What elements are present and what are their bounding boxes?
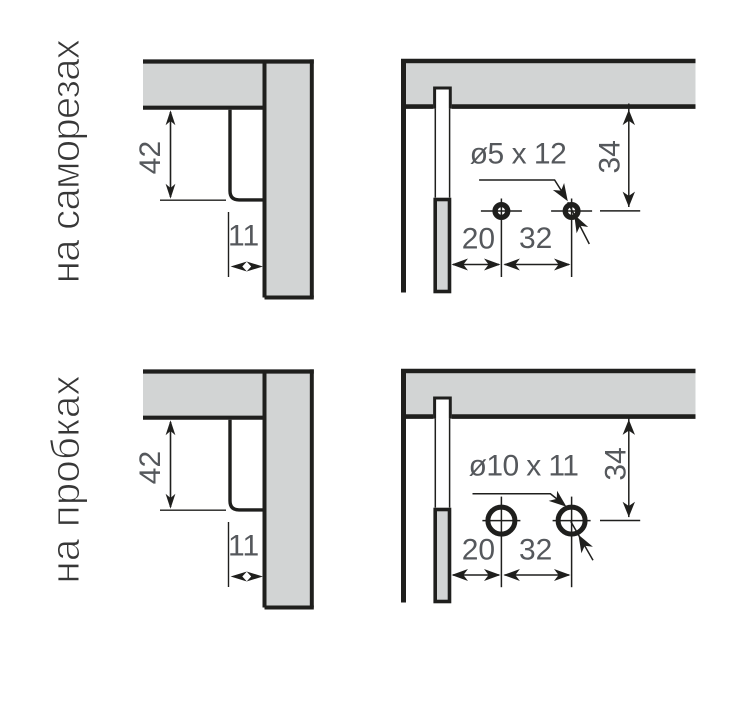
svg-text:32: 32	[519, 534, 552, 567]
svg-text:34: 34	[593, 140, 626, 173]
svg-text:11: 11	[228, 530, 259, 563]
svg-text:34: 34	[600, 447, 633, 480]
svg-text:42: 42	[134, 141, 167, 174]
svg-text:на саморезах: на саморезах	[44, 39, 88, 283]
svg-text:11: 11	[228, 220, 259, 253]
svg-text:ø5 x 12: ø5 x 12	[470, 137, 567, 170]
svg-text:32: 32	[519, 222, 552, 255]
svg-text:42: 42	[134, 451, 167, 484]
svg-text:20: 20	[462, 534, 495, 567]
svg-text:ø10 x 11: ø10 x 11	[469, 449, 579, 482]
svg-text:20: 20	[462, 223, 495, 256]
svg-text:на пробках: на пробках	[44, 376, 88, 584]
